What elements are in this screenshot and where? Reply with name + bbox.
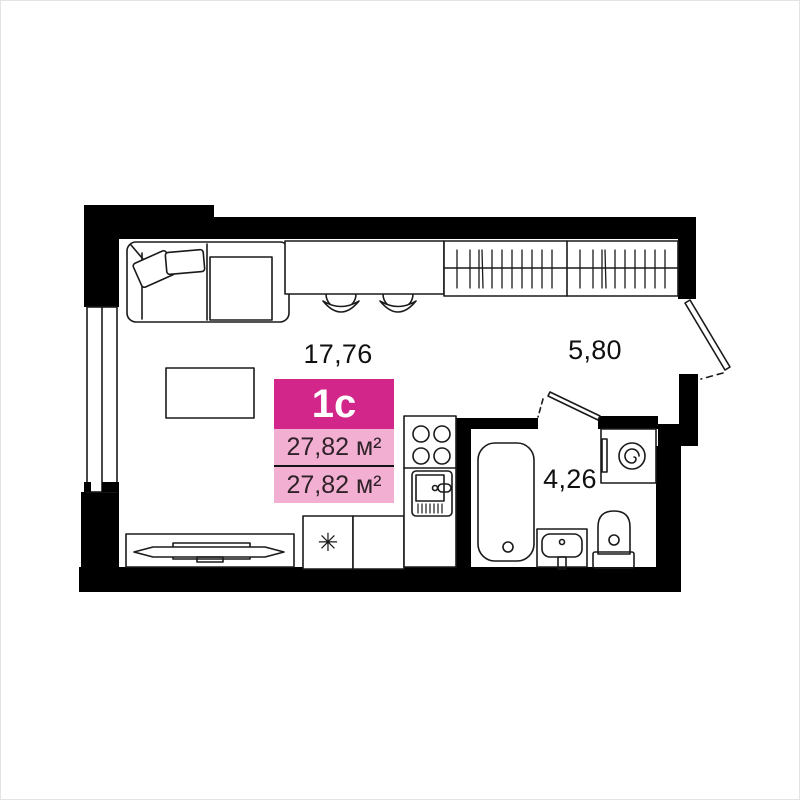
washing-machine-icon <box>601 429 656 483</box>
fridge-star-symbol: ✳ <box>303 516 353 569</box>
wall-bathroom-right <box>656 446 681 571</box>
hallway-area-label: 5,80 <box>568 335 622 366</box>
unit-living-area: 27,82 м² <box>274 467 394 503</box>
wall-top <box>84 217 696 239</box>
bathtub-icon <box>478 443 534 561</box>
kitchen-cabinet-icon <box>353 516 404 569</box>
unit-badge[interactable]: 1с 27,82 м² 27,82 м² <box>274 379 394 503</box>
bathroom-sink-icon <box>537 529 587 569</box>
wall-left-upper <box>84 217 119 307</box>
unit-type-label: 1с <box>274 379 394 429</box>
wardrobe-icon <box>444 241 678 296</box>
toilet-icon <box>593 511 634 568</box>
wall-bathroom-top-right <box>598 416 658 429</box>
entrance-door-icon <box>685 300 730 379</box>
bathroom-area-label: 4,26 <box>543 464 597 495</box>
wall-bottom <box>79 567 681 592</box>
floor-plan-canvas: 17,76 5,80 4,26 ✳ 1с 27,82 м² 27,82 м² <box>0 0 800 800</box>
wall-right-upper-block <box>678 239 696 299</box>
window-icon <box>84 307 119 492</box>
bar-counter-icon <box>285 241 444 294</box>
wall-right-step <box>658 424 698 446</box>
wall-left-lower <box>81 492 119 569</box>
floor-plan-drawing <box>1 1 800 800</box>
living-room-area-label: 17,76 <box>303 339 372 370</box>
coffee-table-icon <box>166 368 254 418</box>
bathroom-door-icon <box>538 392 600 420</box>
wall-bathroom-top <box>456 418 538 429</box>
wall-bathroom-left <box>456 418 471 569</box>
sofa-icon <box>127 242 289 322</box>
wall-top-left-bump <box>84 205 214 218</box>
unit-total-area: 27,82 м² <box>274 429 394 465</box>
